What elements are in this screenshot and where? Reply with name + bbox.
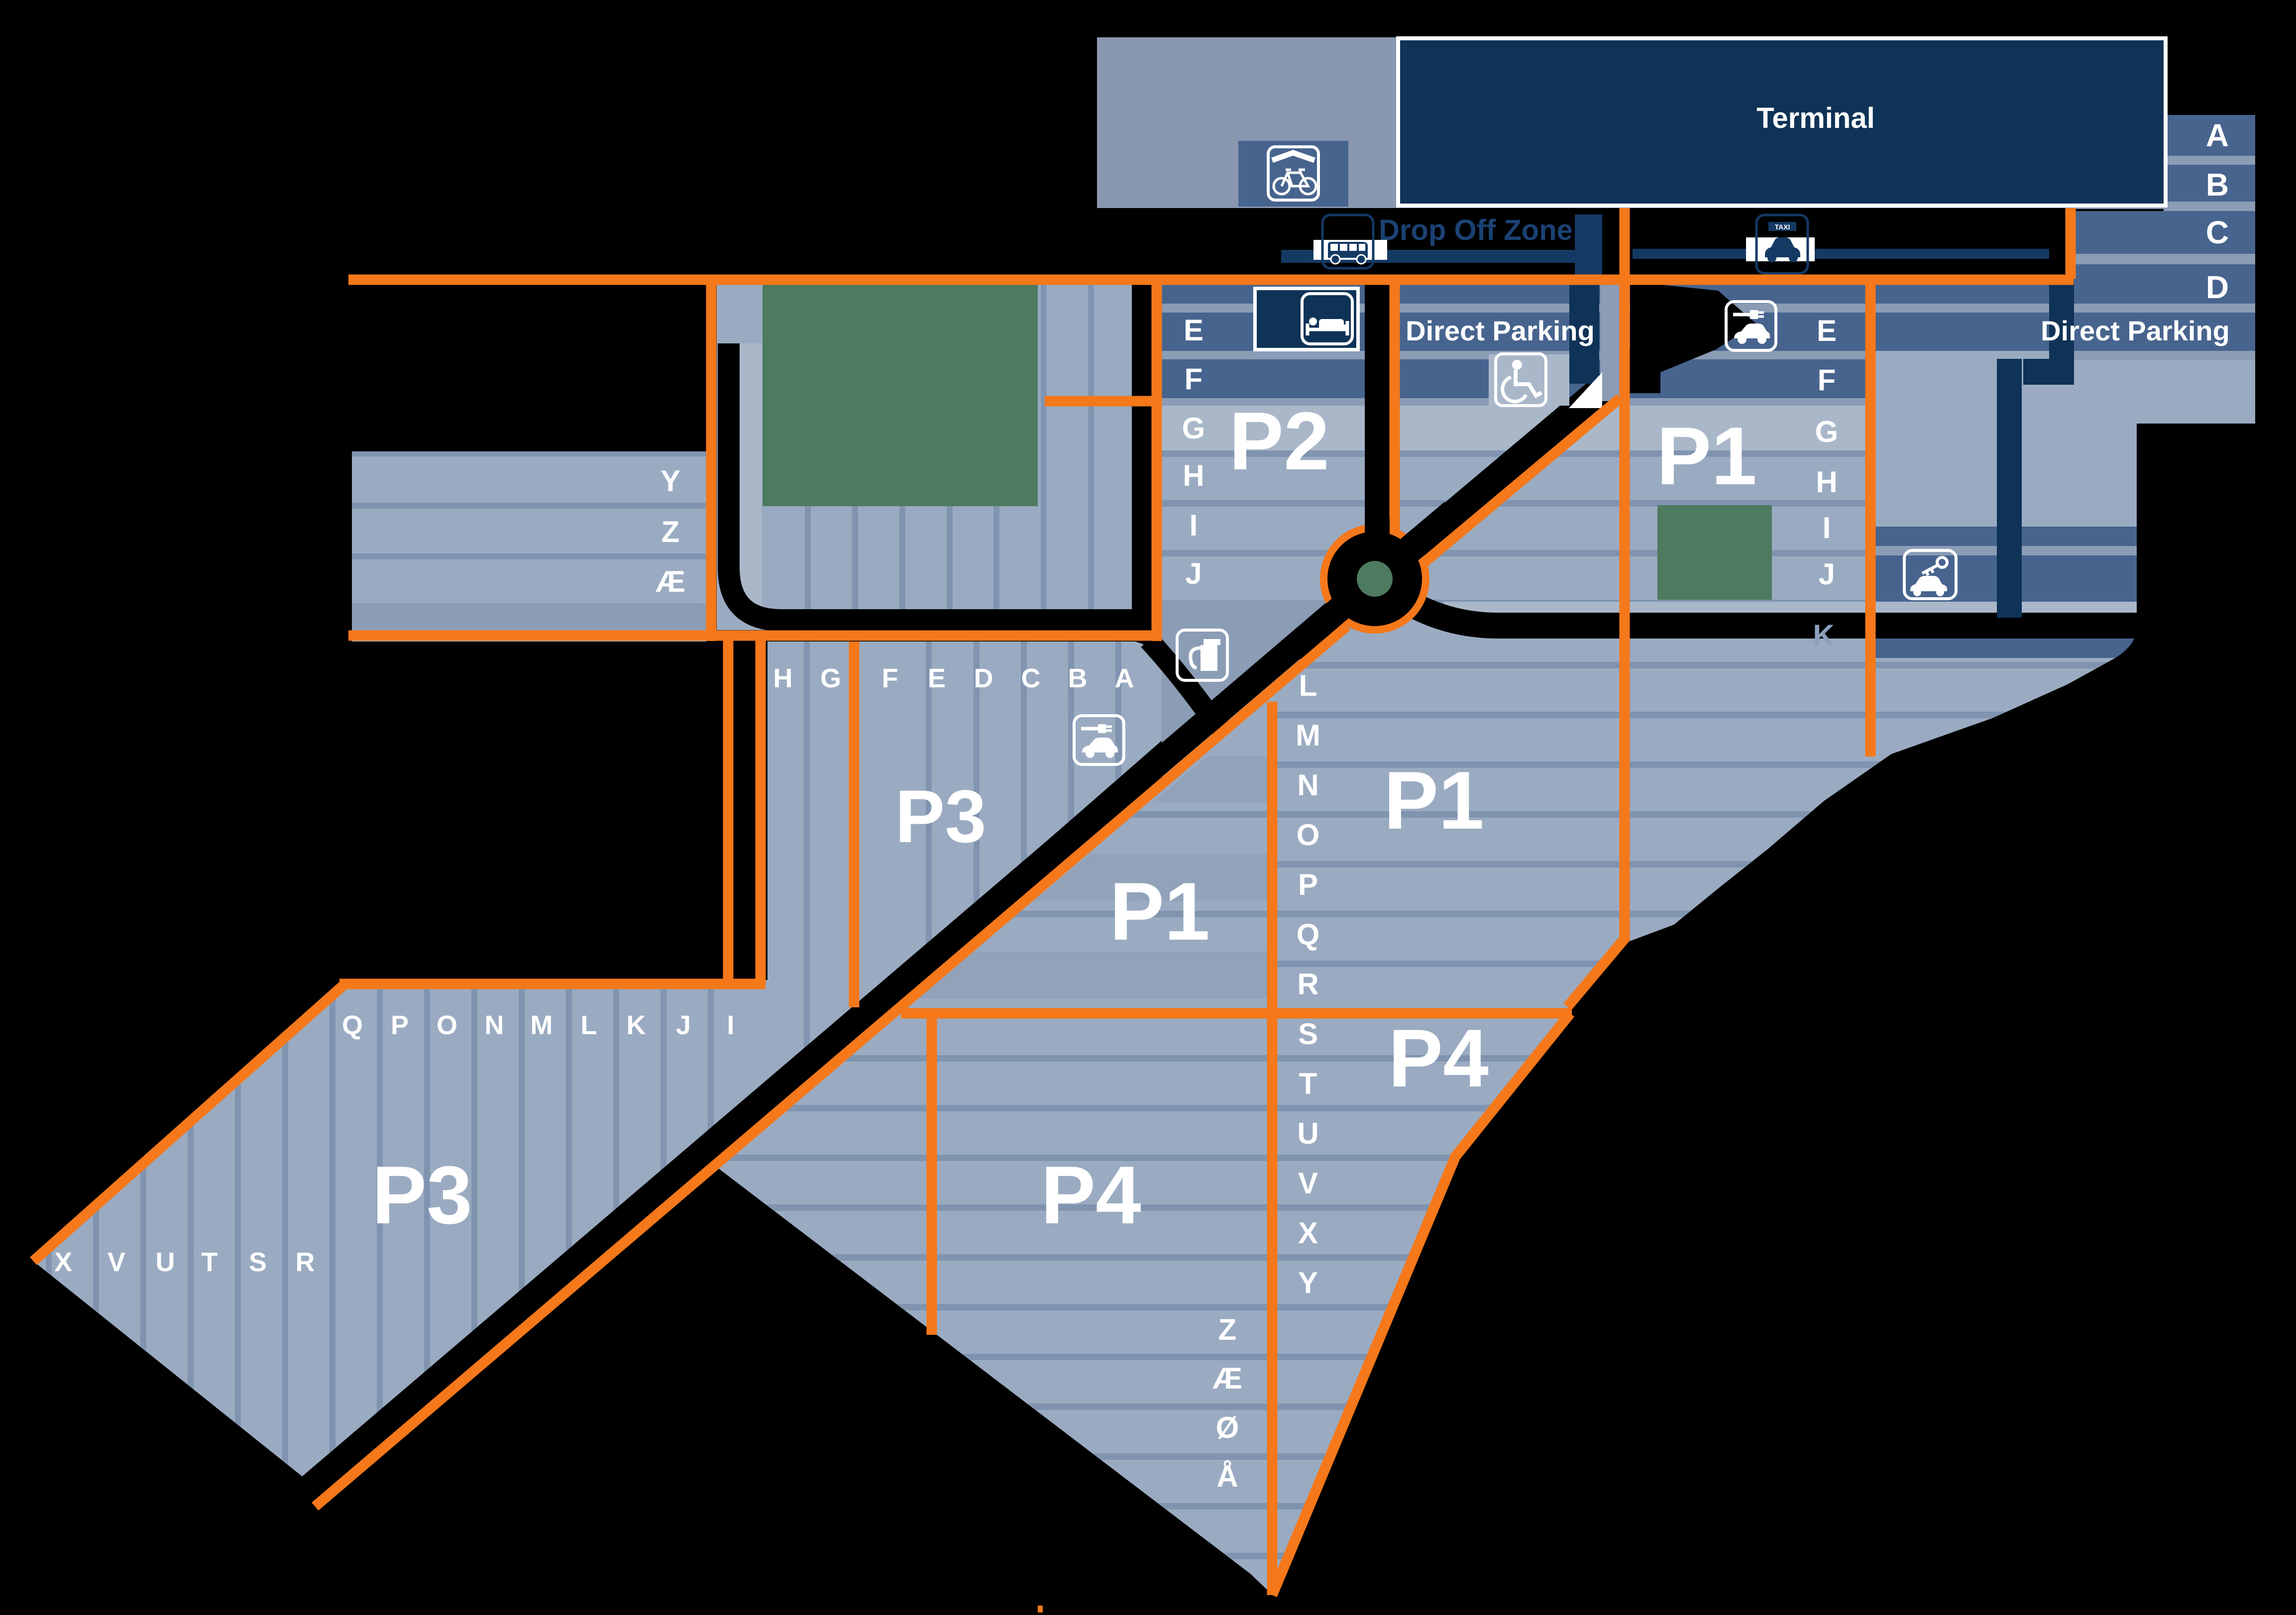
- svg-text:P1: P1: [1109, 865, 1210, 957]
- svg-text:I: I: [1190, 509, 1198, 542]
- svg-text:T: T: [202, 1247, 218, 1277]
- svg-text:G: G: [1182, 412, 1205, 445]
- svg-text:P3: P3: [372, 1149, 472, 1241]
- svg-text:P2: P2: [1229, 395, 1329, 487]
- svg-text:T: T: [1299, 1067, 1317, 1100]
- svg-text:R: R: [296, 1247, 315, 1277]
- svg-text:H: H: [1816, 465, 1837, 499]
- svg-text:U: U: [156, 1247, 175, 1277]
- svg-text:E: E: [928, 663, 946, 693]
- svg-text:N: N: [485, 1010, 504, 1040]
- svg-text:O: O: [437, 1010, 457, 1040]
- svg-text:S: S: [249, 1247, 267, 1277]
- svg-text:E: E: [1817, 314, 1837, 347]
- svg-text:TAXI: TAXI: [1775, 223, 1790, 231]
- svg-text:Æ: Æ: [656, 565, 685, 598]
- svg-text:K: K: [1813, 619, 1834, 652]
- svg-text:C: C: [1021, 663, 1041, 693]
- svg-text:I: I: [1823, 511, 1831, 544]
- svg-text:E: E: [1184, 314, 1203, 347]
- svg-text:Æ: Æ: [1212, 1362, 1242, 1395]
- svg-text:S: S: [1298, 1017, 1318, 1051]
- svg-text:P1: P1: [1656, 410, 1757, 502]
- svg-text:F: F: [1818, 363, 1836, 397]
- svg-text:C: C: [2206, 215, 2229, 250]
- svg-text:V: V: [1298, 1167, 1318, 1200]
- svg-text:J: J: [1818, 557, 1835, 591]
- svg-text:K: K: [627, 1010, 646, 1040]
- svg-text:Y: Y: [660, 464, 680, 498]
- svg-text:P4: P4: [1388, 1012, 1489, 1104]
- svg-text:X: X: [54, 1247, 72, 1277]
- svg-text:J: J: [676, 1010, 691, 1040]
- svg-text:L: L: [581, 1010, 597, 1040]
- svg-text:P1: P1: [1384, 754, 1484, 846]
- svg-text:Q: Q: [342, 1010, 363, 1040]
- svg-text:J: J: [1185, 557, 1202, 590]
- svg-text:Y: Y: [1298, 1266, 1318, 1299]
- svg-text:Z: Z: [661, 515, 680, 548]
- svg-text:F: F: [1185, 362, 1203, 396]
- svg-text:B: B: [1068, 663, 1088, 693]
- svg-text:O: O: [1297, 818, 1320, 852]
- svg-text:Direct Parking: Direct Parking: [1406, 315, 1595, 346]
- svg-text:Å: Å: [1216, 1460, 1238, 1493]
- svg-text:P4: P4: [1041, 1149, 1141, 1241]
- svg-text:N: N: [1297, 768, 1318, 802]
- svg-text:P3: P3: [895, 774, 986, 858]
- svg-text:Drop Off Zone: Drop Off Zone: [1379, 214, 1573, 246]
- svg-text:G: G: [1815, 415, 1839, 448]
- svg-text:Direct Parking: Direct Parking: [2041, 315, 2230, 346]
- svg-text:Ø: Ø: [1216, 1411, 1239, 1444]
- svg-text:L: L: [1299, 669, 1317, 702]
- svg-text:A: A: [1115, 663, 1134, 693]
- svg-text:M: M: [1296, 719, 1320, 752]
- svg-text:H: H: [1183, 459, 1204, 492]
- svg-text:Terminal: Terminal: [1756, 102, 1874, 134]
- svg-text:I: I: [727, 1010, 734, 1040]
- svg-text:D: D: [974, 663, 993, 693]
- svg-text:P: P: [391, 1010, 409, 1040]
- svg-text:P: P: [1298, 868, 1318, 901]
- svg-text:R: R: [1297, 968, 1318, 1001]
- svg-text:F: F: [882, 663, 898, 693]
- svg-text:X: X: [1298, 1216, 1318, 1250]
- svg-text:D: D: [2206, 269, 2229, 305]
- svg-text:U: U: [1297, 1117, 1318, 1150]
- svg-text:V: V: [108, 1247, 125, 1277]
- svg-text:Q: Q: [1297, 918, 1320, 951]
- svg-text:M: M: [531, 1010, 553, 1040]
- svg-text:Z: Z: [1218, 1313, 1237, 1346]
- svg-text:A: A: [2206, 117, 2229, 153]
- svg-text:G: G: [820, 663, 841, 693]
- svg-text:H: H: [773, 663, 793, 693]
- svg-text:B: B: [2206, 167, 2229, 203]
